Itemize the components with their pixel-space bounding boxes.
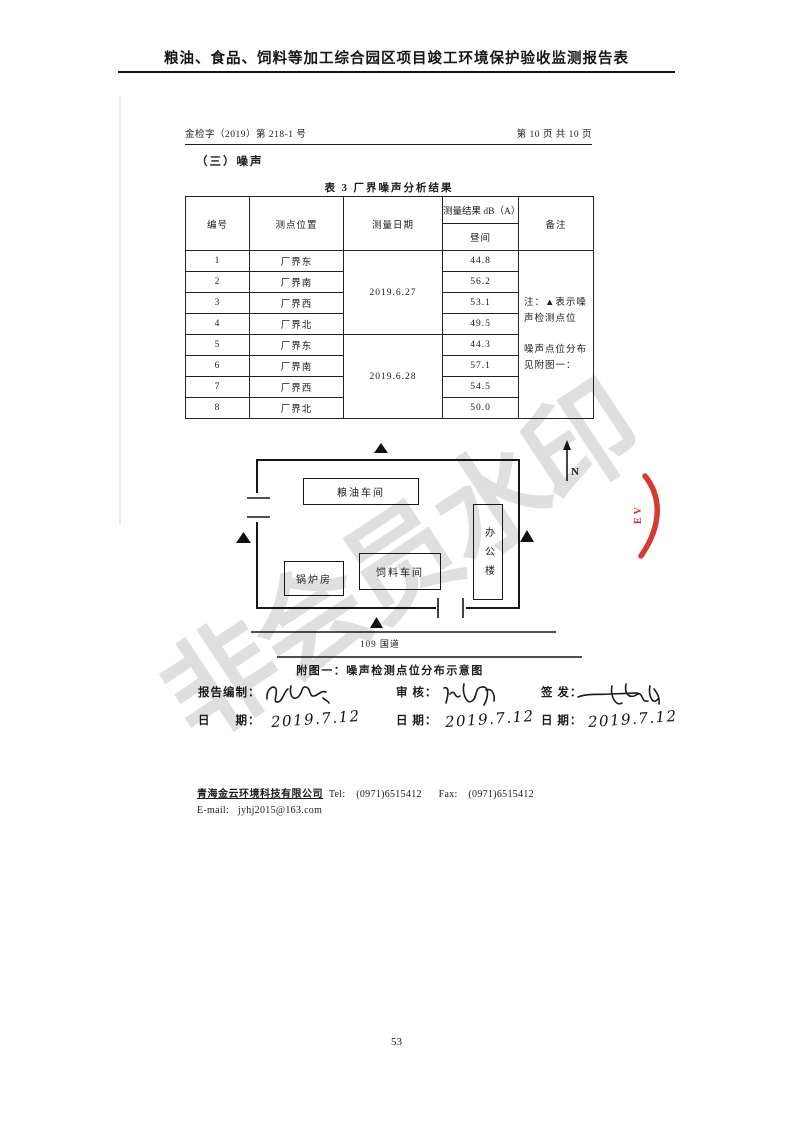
col-subheader-daytime: 昼间	[443, 224, 519, 251]
email-label: E-mail:	[197, 805, 229, 816]
noise-point-marker-west-icon	[236, 532, 251, 543]
cell-id: 1	[186, 251, 250, 272]
col-header-result: 测量结果 dB（A）	[443, 197, 519, 224]
reviewed-date-row: 日 期： 2019.7.12	[396, 712, 535, 730]
cell-value: 44.3	[443, 335, 519, 356]
cell-date-group-2: 2019.6.28	[344, 335, 443, 419]
building-grain-oil-workshop: 粮油车间	[303, 478, 419, 505]
page-number: 53	[0, 1036, 793, 1048]
col-header-location: 测点位置	[250, 197, 344, 251]
cell-value: 56.2	[443, 272, 519, 293]
issued-date-label: 日 期：	[541, 712, 582, 728]
col-header-remark: 备注	[519, 197, 594, 251]
issued-date-row: 日 期： 2019.7.12	[541, 712, 678, 730]
reviewed-date-label: 日 期：	[396, 712, 437, 728]
prepared-by-signature	[263, 681, 333, 709]
remark-note-2: 噪声点位分布见附图一：	[524, 342, 588, 374]
cell-value: 50.0	[443, 398, 519, 419]
scanned-report-page: 非会员水印 粮油、食品、饲料等加工综合园区项目竣工环境保护验收监测报告表 金检字…	[0, 0, 793, 1122]
cell-date-group-1: 2019.6.27	[344, 251, 443, 335]
seal-letters: EV	[633, 504, 644, 524]
noise-point-marker-south-icon	[370, 617, 383, 628]
cell-value: 49.5	[443, 314, 519, 335]
table-caption: 表 3 厂界噪声分析结果	[185, 180, 593, 195]
red-seal-partial: EV	[628, 470, 672, 562]
building-boiler-room: 锅炉房	[284, 561, 344, 596]
col-header-date: 测量日期	[344, 197, 443, 251]
issued-by-row: 签 发：	[541, 684, 664, 712]
reviewed-date-value: 2019.7.12	[445, 707, 536, 731]
site-layout-diagram	[230, 435, 680, 680]
fax-value: (0971)6515412	[468, 789, 534, 800]
north-arrow-head-icon	[563, 440, 571, 450]
cell-location: 厂界南	[250, 356, 344, 377]
page-indicator: 第 10 页 共 10 页	[517, 126, 592, 140]
reviewed-by-signature	[439, 680, 499, 710]
prepared-date-label: 日 期：	[198, 712, 261, 728]
scan-edge-line	[119, 95, 121, 525]
cell-id: 3	[186, 293, 250, 314]
cell-location: 厂界北	[250, 314, 344, 335]
email-value: jyhj2015@163.com	[238, 805, 322, 816]
north-label: N	[571, 466, 579, 478]
footer: 青海金云环境科技有限公司 Tel: (0971)6515412 Fax: (09…	[197, 787, 534, 818]
report-header-title: 粮油、食品、饲料等加工综合园区项目竣工环境保护验收监测报告表	[0, 47, 793, 68]
footer-line-2: E-mail: jyhj2015@163.com	[197, 803, 534, 819]
cell-location: 厂界东	[250, 251, 344, 272]
diagram-caption: 附图一：噪声检测点位分布示意图	[230, 662, 550, 678]
building-feed-workshop: 饲料车间	[359, 553, 441, 590]
cell-location: 厂界东	[250, 335, 344, 356]
noise-point-marker-east-icon	[520, 530, 534, 542]
cell-value: 53.1	[443, 293, 519, 314]
col-header-id: 编号	[186, 197, 250, 251]
prepared-date-value: 2019.7.12	[270, 707, 361, 731]
bottom-gate-opening	[436, 604, 466, 612]
footer-line-1: 青海金云环境科技有限公司 Tel: (0971)6515412 Fax: (09…	[197, 787, 534, 803]
cell-location: 厂界西	[250, 377, 344, 398]
cell-id: 6	[186, 356, 250, 377]
cell-value: 57.1	[443, 356, 519, 377]
cell-id: 8	[186, 398, 250, 419]
doc-number: 金检字（2019）第 218-1 号	[185, 126, 306, 140]
cell-id: 5	[186, 335, 250, 356]
issued-by-signature	[576, 680, 664, 712]
tel-value: (0971)6515412	[356, 789, 422, 800]
company-name: 青海金云环境科技有限公司	[197, 789, 323, 800]
cell-value: 44.8	[443, 251, 519, 272]
reviewed-by-row: 审 核：	[396, 684, 499, 710]
remark-note: 注：▲表示噪声检测点位	[524, 295, 588, 327]
noise-analysis-table: 编号 测点位置 测量日期 测量结果 dB（A） 备注 昼间 1 厂界东 2019…	[185, 196, 594, 419]
road-label: 109 国道	[330, 637, 430, 650]
cell-id: 7	[186, 377, 250, 398]
noise-point-marker-north-icon	[374, 443, 388, 453]
header-rule	[118, 71, 675, 73]
prepared-by-label: 报告编制：	[198, 684, 261, 700]
page-content: 粮油、食品、饲料等加工综合园区项目竣工环境保护验收监测报告表 金检字（2019）…	[0, 0, 793, 1122]
cell-location: 厂界西	[250, 293, 344, 314]
cell-location: 厂界南	[250, 272, 344, 293]
cell-value: 54.5	[443, 377, 519, 398]
building-office: 办公楼	[473, 504, 503, 600]
doc-number-line: 金检字（2019）第 218-1 号 第 10 页 共 10 页	[185, 126, 592, 145]
cell-location: 厂界北	[250, 398, 344, 419]
reviewed-by-label: 审 核：	[396, 684, 437, 700]
cell-id: 2	[186, 272, 250, 293]
tel-label: Tel:	[329, 789, 346, 800]
cell-id: 4	[186, 314, 250, 335]
fax-label: Fax:	[439, 789, 458, 800]
cell-remark: 注：▲表示噪声检测点位 噪声点位分布见附图一：	[519, 251, 594, 419]
section-heading-noise: （三）噪声	[196, 153, 264, 169]
prepared-date-row: 日 期： 2019.7.12	[198, 712, 360, 730]
prepared-by-row: 报告编制：	[198, 684, 333, 709]
